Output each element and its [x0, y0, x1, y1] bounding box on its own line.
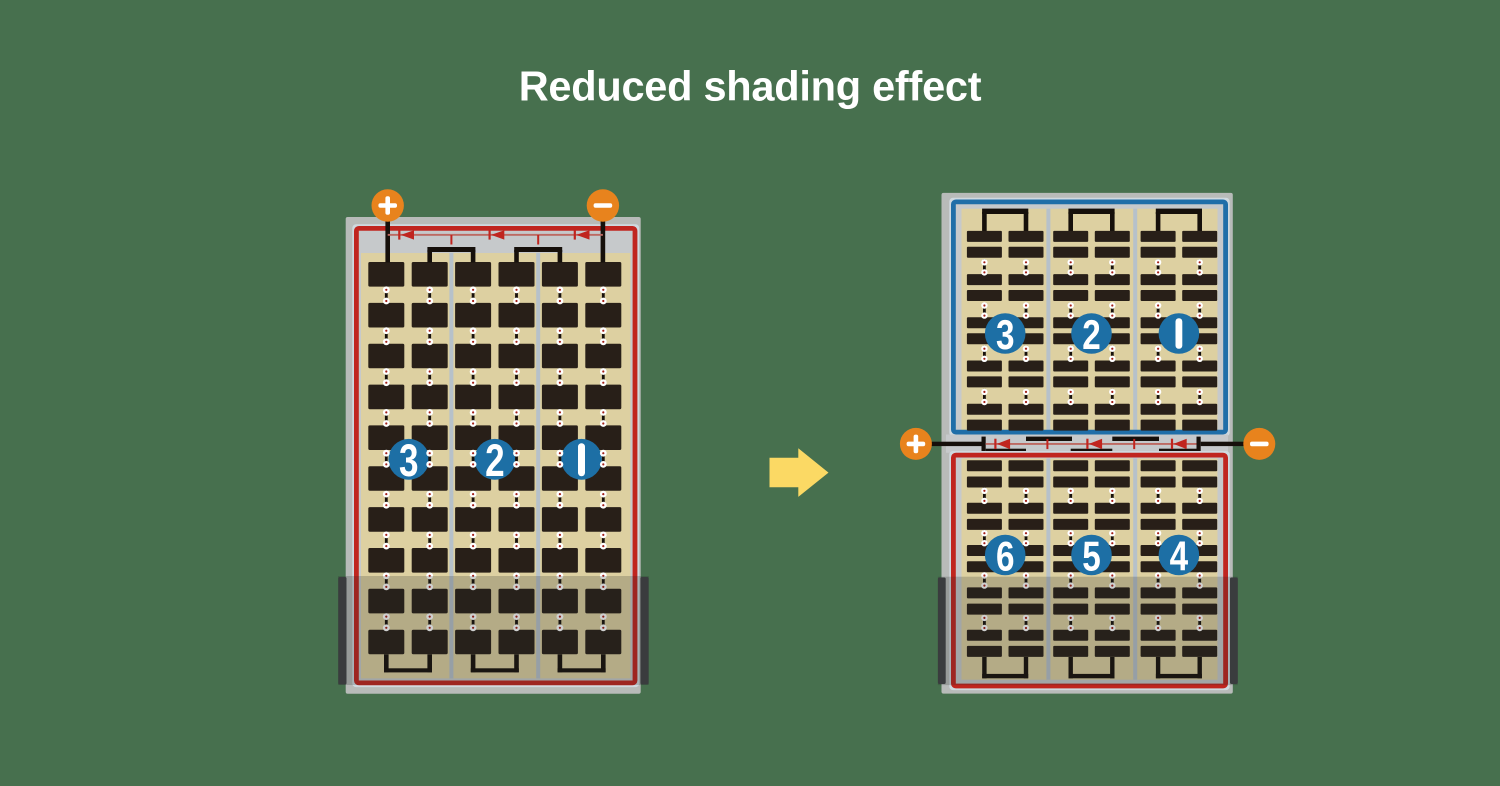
svg-text:3: 3 — [996, 311, 1015, 358]
svg-text:2: 2 — [485, 435, 505, 486]
svg-text:2: 2 — [1082, 311, 1101, 358]
svg-text:3: 3 — [399, 435, 419, 486]
svg-text:Reduced shading effect: Reduced shading effect — [519, 63, 982, 110]
svg-text:4: 4 — [1170, 532, 1189, 579]
svg-text:5: 5 — [1082, 532, 1101, 579]
svg-text:6: 6 — [996, 532, 1015, 579]
